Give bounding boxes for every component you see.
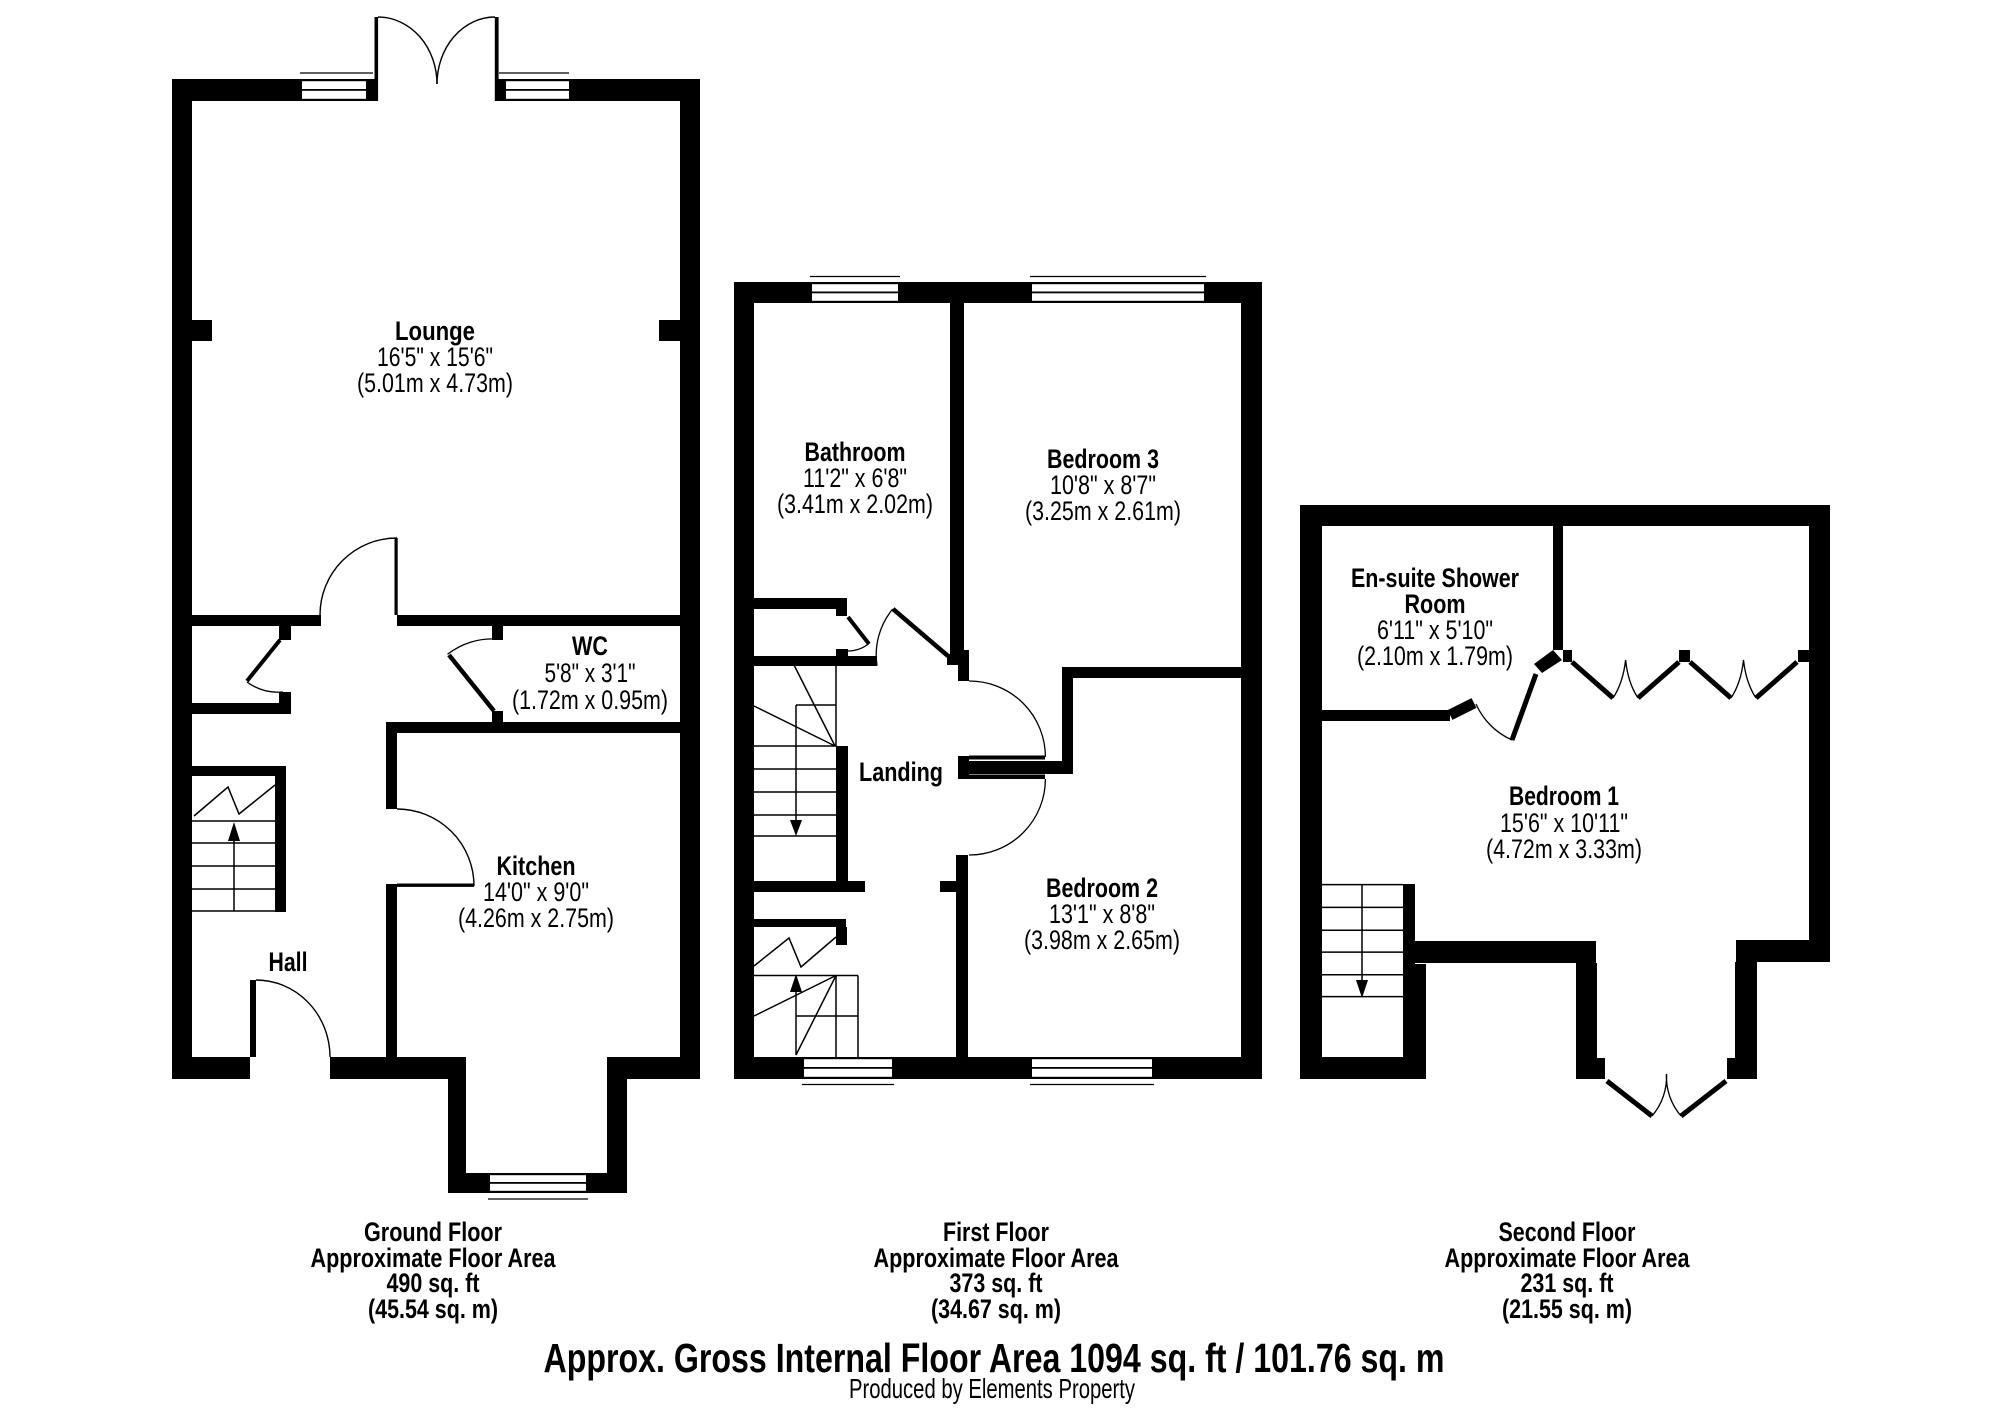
svg-text:WC: WC bbox=[572, 631, 608, 661]
svg-text:(4.72m x 3.33m): (4.72m x 3.33m) bbox=[1486, 834, 1642, 864]
svg-text:(3.25m x 2.61m): (3.25m x 2.61m) bbox=[1025, 496, 1181, 526]
svg-text:(2.10m x 1.79m): (2.10m x 1.79m) bbox=[1357, 641, 1513, 671]
svg-text:(3.41m x 2.02m): (3.41m x 2.02m) bbox=[777, 489, 933, 519]
svg-text:Hall: Hall bbox=[269, 947, 308, 977]
svg-text:(1.72m x 0.95m): (1.72m x 0.95m) bbox=[512, 685, 668, 715]
svg-text:5'8" x 3'1": 5'8" x 3'1" bbox=[545, 658, 636, 688]
svg-text:(34.67 sq. m): (34.67 sq. m) bbox=[931, 1294, 1061, 1324]
svg-text:(21.55 sq. m): (21.55 sq. m) bbox=[1502, 1294, 1632, 1324]
svg-text:(3.98m x 2.65m): (3.98m x 2.65m) bbox=[1024, 925, 1180, 955]
svg-text:Landing: Landing bbox=[859, 757, 943, 787]
svg-text:(4.26m x 2.75m): (4.26m x 2.75m) bbox=[458, 903, 614, 933]
svg-text:(5.01m x 4.73m): (5.01m x 4.73m) bbox=[357, 368, 513, 398]
svg-text:Bedroom 1: Bedroom 1 bbox=[1509, 781, 1619, 811]
svg-text:Produced by Elements Property: Produced by Elements Property bbox=[849, 1373, 1135, 1404]
svg-text:(45.54 sq. m): (45.54 sq. m) bbox=[368, 1294, 498, 1324]
